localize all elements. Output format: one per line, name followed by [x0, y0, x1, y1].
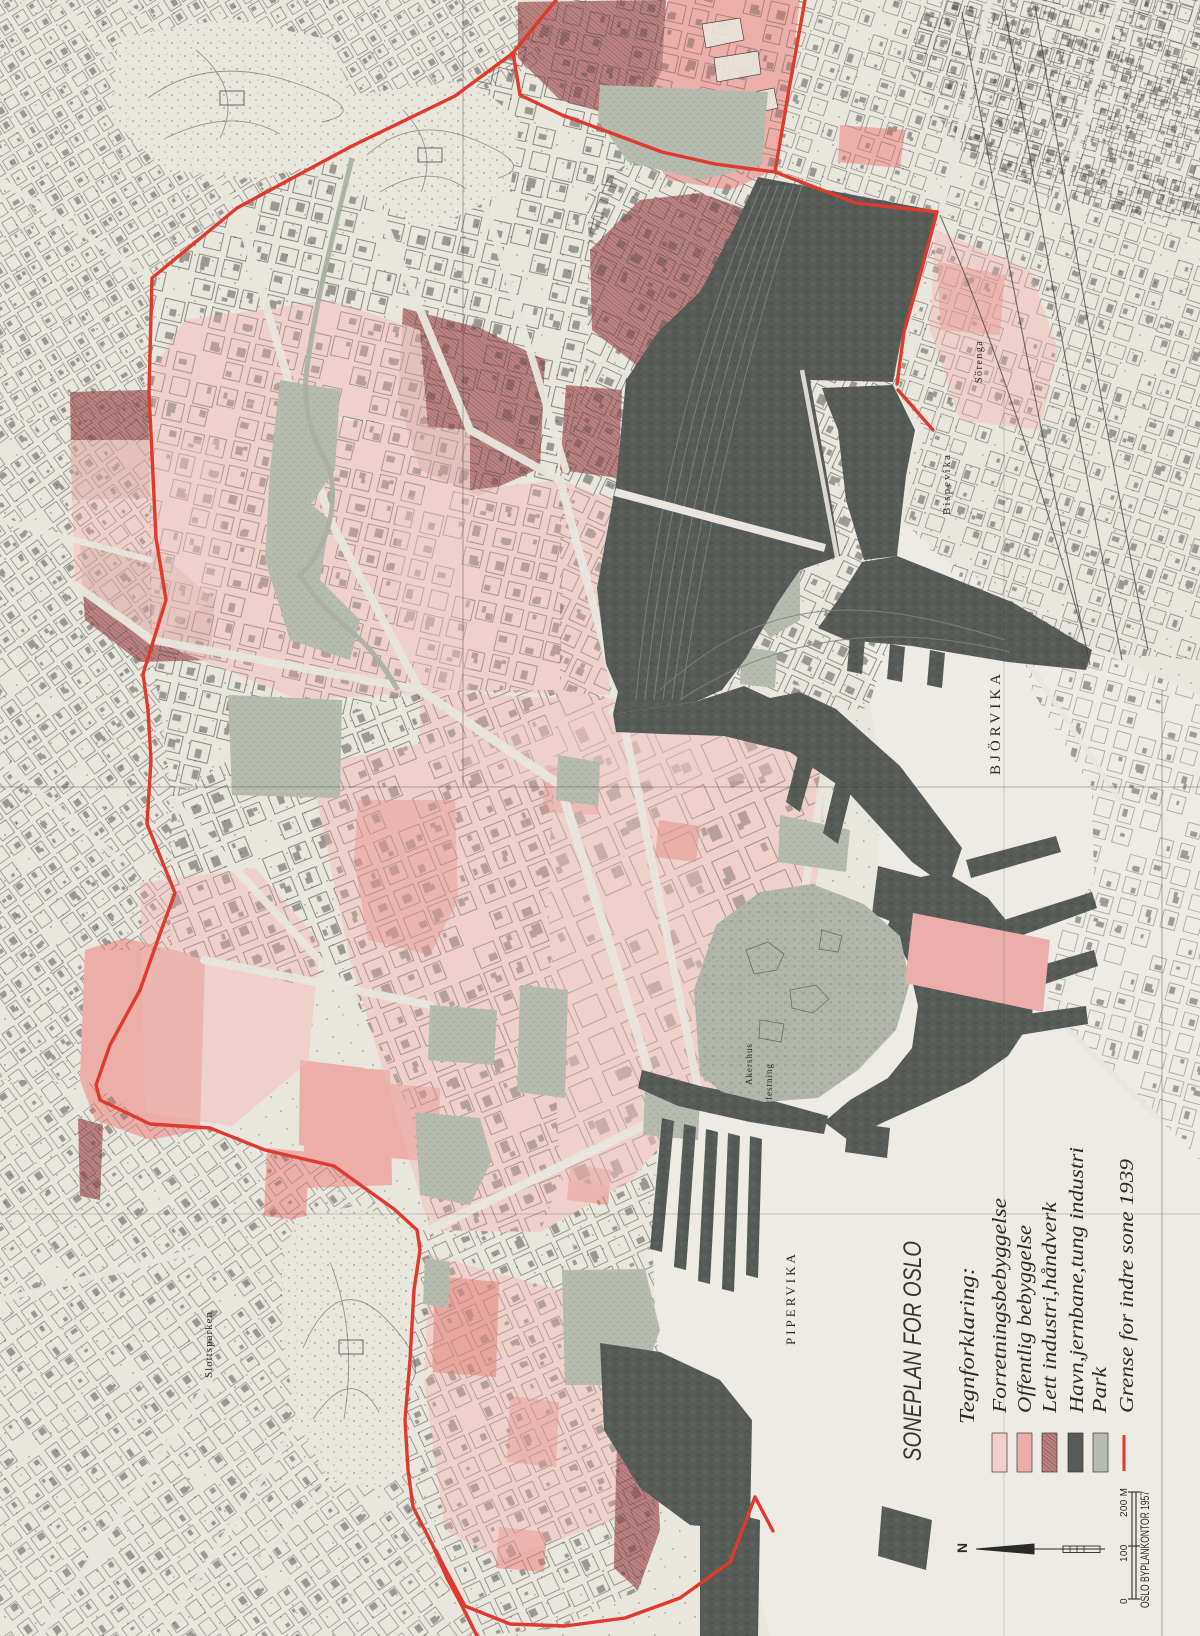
svg-text:SONEPLAN FOR OSLO: SONEPLAN FOR OSLO: [899, 1241, 927, 1461]
svg-text:200 M: 200 M: [1119, 1488, 1130, 1517]
svg-text:BJÖRVIKA: BJÖRVIKA: [987, 670, 1004, 775]
svg-text:Park: Park: [1089, 1366, 1111, 1414]
svg-text:Lett industri,håndverk: Lett industri,håndverk: [1039, 1201, 1061, 1415]
svg-text:0: 0: [1119, 1598, 1130, 1604]
svg-text:Offentlig bebyggelse: Offentlig bebyggelse: [1014, 1225, 1036, 1413]
svg-text:Tegnforklaring:: Tegnforklaring:: [955, 1267, 979, 1424]
svg-text:Havn,jernbane,tung industri: Havn,jernbane,tung industri: [1066, 1147, 1088, 1414]
svg-text:festning: festning: [764, 1063, 774, 1100]
svg-text:100: 100: [1119, 1544, 1130, 1562]
svg-text:Sörenga: Sörenga: [974, 340, 985, 383]
svg-text:PIPERVIKA: PIPERVIKA: [783, 1251, 798, 1345]
svg-text:OSLO BYPLANKONTOR 1957: OSLO BYPLANKONTOR 1957: [1138, 1491, 1152, 1608]
svg-text:Slottsparken: Slottsparken: [203, 1311, 215, 1378]
svg-text:Bispevika: Bispevika: [941, 453, 953, 515]
svg-text:Akershus: Akershus: [744, 1043, 754, 1085]
svg-text:Forretningsbebyggelse: Forretningsbebyggelse: [989, 1198, 1011, 1414]
svg-text:N: N: [954, 1543, 970, 1553]
svg-text:Grense for indre sone 1939: Grense for indre sone 1939: [1116, 1159, 1138, 1413]
